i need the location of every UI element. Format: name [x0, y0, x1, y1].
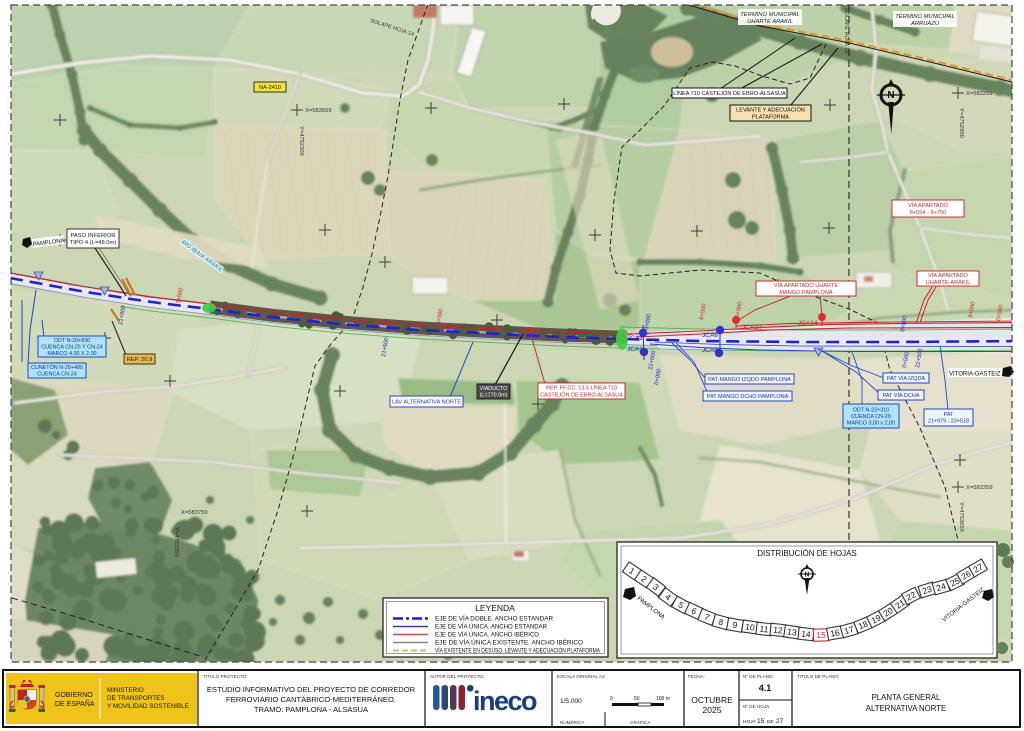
svg-text:21+979 - 23+518: 21+979 - 23+518: [928, 419, 969, 425]
svg-text:EJE DE VÍA DOBLE. ANCHO ESTAND: EJE DE VÍA DOBLE. ANCHO ESTANDAR: [435, 616, 554, 623]
svg-text:TRAMO: PAMPLONA - ALSASUA: TRAMO: PAMPLONA - ALSASUA: [254, 705, 369, 714]
svg-text:JCA1: JCA1: [627, 346, 643, 353]
svg-text:DE: DE: [767, 719, 774, 725]
svg-text:X=582259: X=582259: [966, 91, 993, 97]
svg-text:X=583509: X=583509: [305, 108, 332, 114]
svg-text:TITULO PROYECTO:: TITULO PROYECTO:: [203, 674, 248, 679]
svg-text:X=583759: X=583759: [181, 510, 208, 516]
svg-text:CUENCA CN-29: CUENCA CN-29: [851, 414, 891, 420]
svg-text:HOJA: HOJA: [743, 719, 757, 725]
svg-text:VÍA EXISTENTE EN DESUSO. LEVAN: VÍA EXISTENTE EN DESUSO. LEVANTE Y ADECU…: [435, 648, 600, 655]
svg-text:NA-2410: NA-2410: [259, 85, 281, 91]
svg-text:15: 15: [757, 718, 765, 725]
svg-text:JCA5: JCA5: [702, 347, 718, 354]
svg-text:X=582259: X=582259: [966, 485, 993, 491]
svg-text:JCA2: JCA2: [627, 335, 643, 342]
svg-text:PASO INFERIOR: PASO INFERIOR: [71, 233, 116, 239]
svg-text:VITORIA-GASTEIZ: VITORIA-GASTEIZ: [949, 372, 1001, 378]
svg-text:12: 12: [773, 625, 784, 636]
svg-text:TÉRMINO MUNICIPAL: TÉRMINO MUNICIPAL: [740, 11, 799, 18]
svg-text:DE ESPAÑA: DE ESPAÑA: [55, 699, 95, 708]
svg-text:MARCO 3,00 x 2,00: MARCO 3,00 x 2,00: [847, 421, 895, 427]
svg-text:EJE DE VÍA ÚNICA. ANCHO ESTAND: EJE DE VÍA ÚNICA. ANCHO ESTANDAR: [435, 624, 548, 631]
svg-text:LEYENDA: LEYENDA: [475, 603, 515, 613]
svg-text:REP. FF.CC. 13.5 LÍNEA 710: REP. FF.CC. 13.5 LÍNEA 710: [546, 385, 617, 392]
svg-text:15: 15: [816, 630, 826, 640]
svg-text:REP. 20.9: REP. 20.9: [127, 357, 153, 363]
svg-text:VÍA APARTADO: VÍA APARTADO: [928, 272, 968, 279]
svg-text:Y MOVILIDAD SOSTENIBLE: Y MOVILIDAD SOSTENIBLE: [107, 703, 189, 710]
svg-text:50: 50: [634, 696, 640, 702]
svg-text:Y=4753350: Y=4753350: [173, 527, 179, 557]
svg-text:Nº DE HOJA:: Nº DE HOJA:: [743, 704, 770, 709]
svg-text:CUENCA CN-24: CUENCA CN-24: [37, 372, 77, 378]
svg-text:ODT N-22+310: ODT N-22+310: [853, 407, 890, 413]
svg-text:GRÁFICA: GRÁFICA: [630, 719, 651, 725]
svg-text:8+554 - 9+750: 8+554 - 9+750: [910, 210, 946, 216]
svg-text:0: 0: [610, 696, 613, 702]
svg-text:VÍA APARTADO: VÍA APARTADO: [908, 202, 948, 209]
svg-text:14: 14: [801, 629, 812, 640]
svg-text:DISTRIBUCIÓN DE HOJAS: DISTRIBUCIÓN DE HOJAS: [757, 549, 857, 558]
svg-text:PAT MANGO IZQDO PAMPLONA: PAT MANGO IZQDO PAMPLONA: [708, 377, 791, 383]
svg-text:VIADUCTO: VIADUCTO: [480, 386, 508, 392]
svg-text:TÉRMINO MUNICIPAL: TÉRMINO MUNICIPAL: [895, 13, 954, 20]
svg-text:PLANTA GENERAL: PLANTA GENERAL: [872, 693, 941, 702]
svg-text:DE TRANSPORTES: DE TRANSPORTES: [107, 695, 165, 702]
svg-text:N: N: [887, 90, 894, 101]
svg-text:11: 11: [759, 624, 769, 635]
svg-text:PAT VÍA IZQDA: PAT VÍA IZQDA: [887, 375, 926, 382]
svg-text:CUENCA CN-25 Y CN-24: CUENCA CN-25 Y CN-24: [41, 344, 103, 350]
svg-text:LÍNEA 710 CASTEJÓN DE EBRO-ALS: LÍNEA 710 CASTEJÓN DE EBRO-ALSASUA: [673, 90, 786, 97]
svg-text:4.1: 4.1: [759, 683, 772, 693]
svg-text:10: 10: [745, 621, 756, 632]
svg-text:JCA10: JCA10: [742, 324, 762, 331]
svg-text:EJE DE VÍA ÚNICA. ANCHO IBÉRIC: EJE DE VÍA ÚNICA. ANCHO IBÉRICO: [435, 632, 539, 639]
svg-text:OCTUBRE: OCTUBRE: [691, 695, 733, 705]
svg-text:SOLAPE HOJA 16: SOLAPE HOJA 16: [843, 8, 849, 54]
svg-text:PAT VÍA DCHA: PAT VÍA DCHA: [883, 392, 920, 399]
svg-text:AUTOR DEL PROYECTO:: AUTOR DEL PROYECTO:: [430, 674, 484, 679]
svg-text:LEVANTE Y ADECUACIÓN: LEVANTE Y ADECUACIÓN: [736, 107, 805, 114]
svg-text:ESCALA ORIGINAL A3: ESCALA ORIGINAL A3: [557, 674, 605, 679]
svg-text:JCA6: JCA6: [702, 332, 718, 339]
svg-text:UHARTE-ARÁKIL: UHARTE-ARÁKIL: [926, 279, 971, 286]
svg-text:100 m: 100 m: [656, 696, 670, 702]
svg-text:EJE DE VÍA ÚNICA EXISTENTE. AN: EJE DE VÍA ÚNICA EXISTENTE. ANCHO IBÉRIC…: [435, 640, 583, 647]
svg-text:LAV ALTERNATIVA NORTE: LAV ALTERNATIVA NORTE: [392, 400, 461, 406]
svg-text:TIPO 4 (L=48.0m): TIPO 4 (L=48.0m): [70, 240, 117, 246]
svg-text:UHARTE ARAKIL: UHARTE ARAKIL: [747, 19, 793, 25]
svg-text:PLATAFORMA: PLATAFORMA: [752, 114, 789, 120]
svg-text:VÍA APARTADO UHARTE: VÍA APARTADO UHARTE: [774, 282, 839, 289]
svg-text:(L=770.0m): (L=770.0m): [480, 393, 508, 399]
svg-text:TITULO DE PLANO:: TITULO DE PLANO:: [797, 674, 839, 679]
svg-text:N: N: [805, 571, 810, 578]
svg-text:JCA14: JCA14: [798, 320, 818, 327]
svg-text:ARRUAZU: ARRUAZU: [910, 21, 940, 27]
svg-text:PAT MANGO DCHO PAMPLONA: PAT MANGO DCHO PAMPLONA: [707, 394, 789, 400]
svg-text:ALTERNATIVA NORTE: ALTERNATIVA NORTE: [866, 704, 946, 713]
svg-text:MINISTERIO: MINISTERIO: [107, 687, 144, 694]
svg-text:CASTEJÓN DE EBRO-ALSASUA: CASTEJÓN DE EBRO-ALSASUA: [540, 391, 623, 398]
svg-text:MANGO PAMPLONA: MANGO PAMPLONA: [779, 290, 833, 296]
svg-text:Nº DE PLANO:: Nº DE PLANO:: [743, 674, 774, 679]
svg-text:27: 27: [776, 718, 784, 725]
svg-text:Y=4752900: Y=4752900: [958, 108, 964, 138]
svg-text:Y=4752300: Y=4752300: [298, 126, 304, 156]
svg-text:PAT: PAT: [944, 412, 954, 418]
svg-text:13: 13: [787, 626, 798, 637]
svg-text:NUMÉRICA: NUMÉRICA: [560, 719, 585, 725]
svg-text:CUNETÓN N-20+480: CUNETÓN N-20+480: [31, 364, 83, 371]
svg-text:MARCO 4.00 X 2.00: MARCO 4.00 X 2.00: [47, 351, 96, 357]
svg-text:ineco: ineco: [473, 686, 537, 716]
svg-text:ODT N-20+830: ODT N-20+830: [54, 338, 91, 344]
svg-text:FECHA:: FECHA:: [688, 674, 705, 679]
svg-text:1/5.000: 1/5.000: [560, 698, 582, 705]
svg-text:ESTUDIO INFORMATIVO DEL PROYEC: ESTUDIO INFORMATIVO DEL PROYECTO DE CORR…: [207, 685, 416, 694]
svg-text:FERROVIARIO CANTÁBRICO-MEDITER: FERROVIARIO CANTÁBRICO-MEDITERRÁNEO.: [226, 695, 396, 704]
svg-text:16: 16: [829, 627, 840, 639]
svg-text:Y=4753650: Y=4753650: [958, 502, 964, 532]
svg-text:2025: 2025: [703, 705, 722, 715]
svg-text:GOBIERNO: GOBIERNO: [55, 692, 93, 699]
